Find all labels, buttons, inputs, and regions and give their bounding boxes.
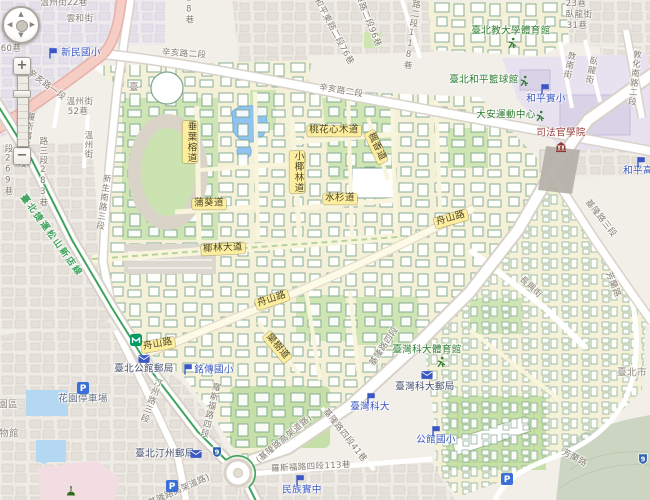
map-base [0, 0, 650, 500]
zoom-slider-track[interactable] [17, 75, 29, 147]
pan-right-arrow[interactable]: ▶ [30, 22, 35, 29]
pan-up-arrow[interactable]: ▲ [18, 11, 23, 18]
map-canvas[interactable]: 溫州街22巷雲和街60巷辛亥路一段溫州街52巷羅斯福路三段段269巷路三段283… [0, 0, 650, 500]
zoom-in-button[interactable]: + [13, 57, 31, 75]
pan-control[interactable]: ▲ ▼ ◀ ▶ [2, 6, 40, 44]
pan-left-arrow[interactable]: ◀ [7, 22, 12, 29]
pan-down-arrow[interactable]: ▼ [18, 32, 23, 39]
zoom-control: + − [12, 57, 34, 165]
zoom-out-button[interactable]: − [13, 147, 31, 165]
zoom-slider-handle[interactable] [13, 90, 31, 98]
pan-center-button[interactable] [16, 20, 28, 32]
